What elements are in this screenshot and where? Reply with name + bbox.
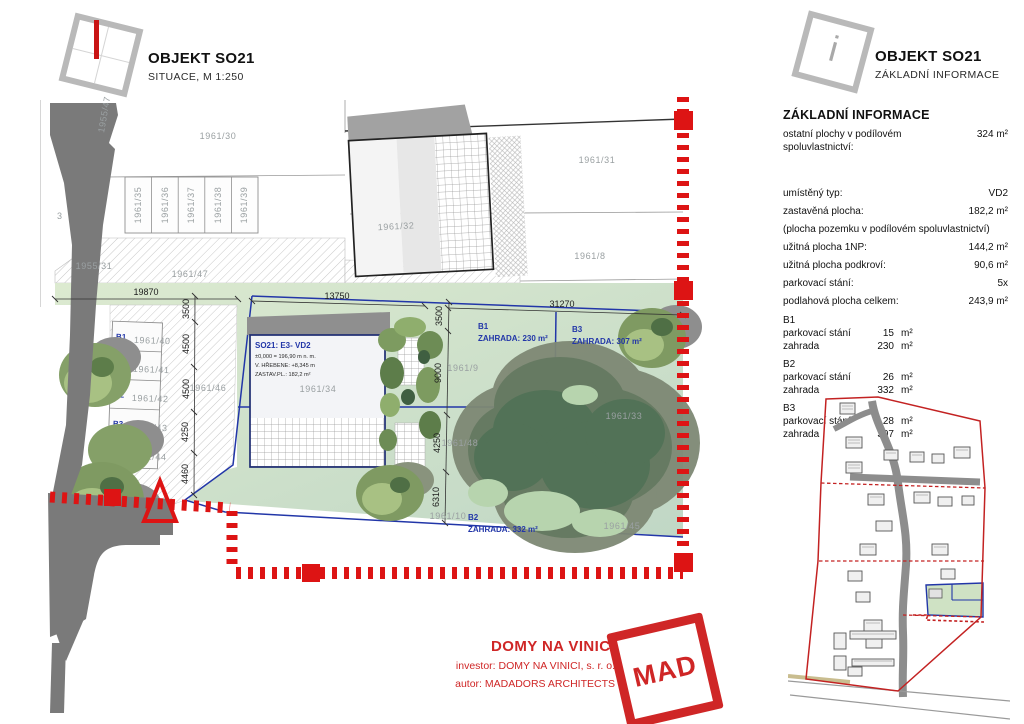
svg-text:1961/35: 1961/35 xyxy=(133,187,143,224)
svg-text:B2: B2 xyxy=(468,513,479,522)
svg-text:1961/48: 1961/48 xyxy=(442,438,479,448)
info-row: podlahová plocha celkem:243,9 m² xyxy=(783,296,1008,309)
svg-text:±0,000 = 196,90 m n. m.: ±0,000 = 196,90 m n. m. xyxy=(255,354,316,360)
svg-text:3: 3 xyxy=(57,211,63,221)
info-title: OBJEKT SO21 xyxy=(875,48,982,65)
info-heading: ZÁKLADNÍ INFORMACE xyxy=(783,108,1008,122)
svg-text:B3: B3 xyxy=(572,325,583,334)
unit-b1: B1 parkovací stání 15m² zahrada 230m² xyxy=(783,315,923,352)
svg-text:1961/40: 1961/40 xyxy=(134,335,171,346)
info-row: (plocha pozemku v podílovém spoluvlastni… xyxy=(783,224,1008,237)
svg-text:1961/39: 1961/39 xyxy=(239,187,249,224)
info-row: umístěný typ:VD2 xyxy=(783,188,1008,201)
svg-text:31270: 31270 xyxy=(549,299,574,309)
svg-text:3500: 3500 xyxy=(181,299,191,319)
svg-text:1961/47: 1961/47 xyxy=(172,269,209,279)
sheet: OBJEKT SO21 SITUACE, M 1:250 i OBJEKT SO… xyxy=(0,0,1024,724)
author-line: autor: MADADORS ARCHITECTS xyxy=(420,678,615,690)
map-road xyxy=(872,401,906,697)
info-row: užitná plocha 1NP:144,2 m² xyxy=(783,242,1008,255)
svg-text:1961/36: 1961/36 xyxy=(160,187,170,224)
svg-text:13750: 13750 xyxy=(324,291,349,301)
svg-text:1961/42: 1961/42 xyxy=(132,393,169,404)
svg-text:6310: 6310 xyxy=(431,487,441,507)
info-row: užitná plocha podkroví:90,6 m² xyxy=(783,260,1008,273)
svg-text:1961/8: 1961/8 xyxy=(574,251,605,261)
investor-line: investor: DOMY NA VINICI, s. r. o. xyxy=(420,660,615,672)
unit-b2: B2 parkovací stání 26m² zahrada 332m² xyxy=(783,359,923,396)
svg-text:1961/31: 1961/31 xyxy=(579,155,616,165)
sheet-title: OBJEKT SO21 xyxy=(148,50,255,67)
info-row: parkovací stání:5x xyxy=(783,278,1008,291)
svg-text:4250: 4250 xyxy=(432,433,442,453)
svg-text:19870: 19870 xyxy=(133,287,158,297)
svg-text:1961/38: 1961/38 xyxy=(213,187,223,224)
svg-text:1961/46: 1961/46 xyxy=(190,383,227,393)
building-so21: SO21: E3- VD2 ±0,000 = 196,90 m n. m. V.… xyxy=(247,312,390,467)
overview-map xyxy=(788,393,1010,723)
svg-text:4250: 4250 xyxy=(180,422,190,442)
svg-text:ZAHRADA: 332 m²: ZAHRADA: 332 m² xyxy=(468,525,538,534)
svg-text:ZAHRADA: 307 m²: ZAHRADA: 307 m² xyxy=(572,337,642,346)
svg-text:4500: 4500 xyxy=(181,334,191,354)
svg-text:1961/32: 1961/32 xyxy=(377,220,414,232)
svg-text:9000: 9000 xyxy=(433,363,443,383)
svg-text:ZAHRADA: 230 m²: ZAHRADA: 230 m² xyxy=(478,334,548,343)
basic-info-panel: ZÁKLADNÍ INFORMACE ostatní plochy v podí… xyxy=(783,108,1008,442)
project-name: DOMY NA VINICI xyxy=(420,638,615,655)
map-boundary-red xyxy=(806,397,985,691)
svg-text:1955/31: 1955/31 xyxy=(76,261,113,271)
building-1961-32: 1961/32 xyxy=(347,102,528,285)
svg-text:1961/30: 1961/30 xyxy=(200,131,237,141)
north-compass-icon xyxy=(59,13,144,98)
info-subtitle: ZÁKLADNÍ INFORMACE xyxy=(875,69,999,81)
compass-needle-icon xyxy=(94,20,99,59)
info-row-shared: ostatní plochy v podílovém spoluvlastnic… xyxy=(783,129,1008,154)
svg-text:1961/9: 1961/9 xyxy=(447,363,478,373)
sheet-subtitle: SITUACE, M 1:250 xyxy=(148,71,244,83)
svg-text:1961/37: 1961/37 xyxy=(186,187,196,224)
svg-text:B1: B1 xyxy=(478,322,489,331)
svg-text:ZASTAV.PL.: 182,2 m²: ZASTAV.PL.: 182,2 m² xyxy=(255,372,311,378)
upper-parking-stalls: 1961/35 1961/36 1961/37 1961/38 1961/39 xyxy=(125,177,258,233)
svg-text:1961/10: 1961/10 xyxy=(430,511,467,521)
svg-text:4460: 4460 xyxy=(180,464,190,484)
svg-text:1961/34: 1961/34 xyxy=(300,384,337,394)
info-icon: i xyxy=(791,10,874,93)
svg-text:3500: 3500 xyxy=(434,306,444,326)
svg-text:1961/33: 1961/33 xyxy=(606,411,643,421)
svg-text:1961/45: 1961/45 xyxy=(604,521,641,531)
project-block: DOMY NA VINICI investor: DOMY NA VINICI,… xyxy=(420,638,615,696)
so21-title: SO21: E3- VD2 xyxy=(255,341,311,350)
info-row: zastavěná plocha:182,2 m² xyxy=(783,206,1008,219)
svg-text:V. HŘEBENE: +8,345 m: V. HŘEBENE: +8,345 m xyxy=(255,361,315,369)
